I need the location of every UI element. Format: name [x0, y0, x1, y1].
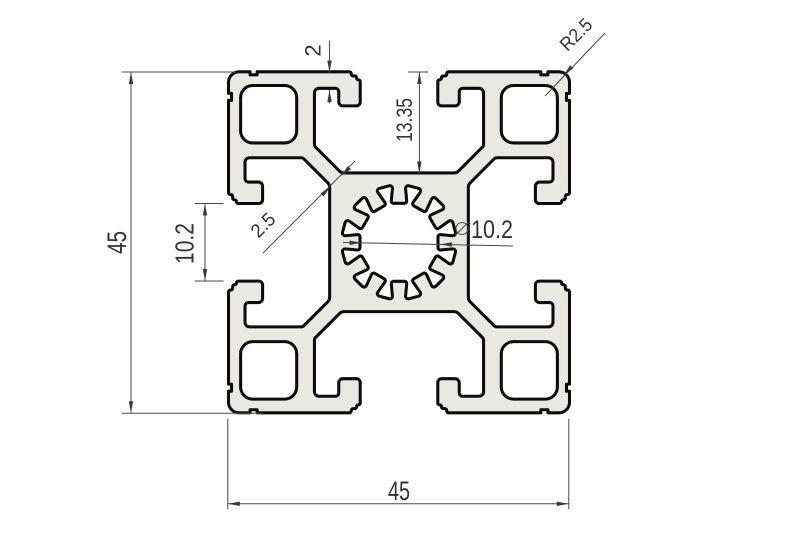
svg-text:45: 45 — [388, 476, 410, 506]
svg-text:13.35: 13.35 — [392, 98, 417, 142]
svg-text:45: 45 — [102, 231, 132, 254]
svg-text:2: 2 — [300, 44, 325, 56]
svg-text:10.2: 10.2 — [169, 223, 199, 264]
svg-text:10.2: 10.2 — [471, 216, 513, 244]
